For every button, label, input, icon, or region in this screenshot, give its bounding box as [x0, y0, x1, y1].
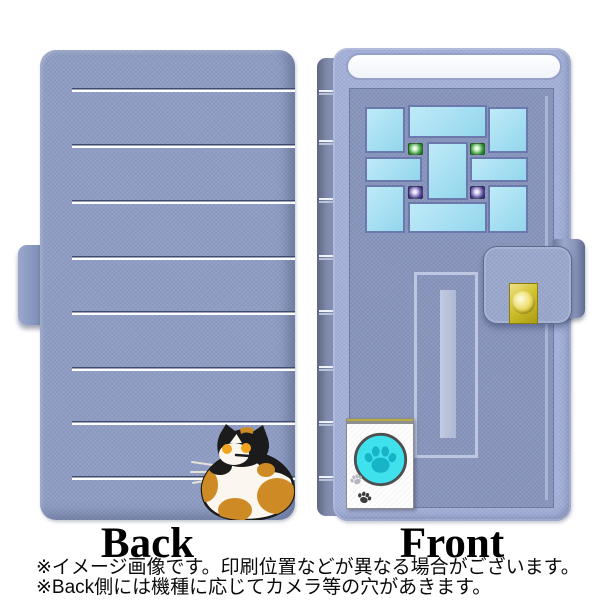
intercom-top-strip — [347, 419, 413, 424]
purple-lamp-icon — [408, 186, 423, 199]
window-pane — [365, 157, 422, 182]
window-pane-center — [427, 142, 468, 200]
gold-knob-icon — [512, 291, 535, 314]
window-pane — [365, 185, 405, 233]
window-pane — [408, 202, 487, 233]
door-handle-bar — [440, 290, 456, 438]
back-stripe — [72, 200, 295, 204]
back-stripe — [72, 256, 295, 260]
phone-case-back — [40, 50, 295, 520]
back-stripe — [72, 367, 295, 371]
window-pane — [408, 105, 487, 138]
window-pane — [470, 157, 528, 182]
window-pane — [365, 107, 405, 153]
door-top-window — [346, 53, 562, 80]
window-pane — [488, 185, 528, 233]
back-stripe — [72, 311, 295, 315]
green-lamp-icon — [408, 143, 423, 155]
back-stripe — [72, 144, 295, 148]
footnotes: ※イメージ画像です。印刷位置などが異なる場合がございます。 ※Back側には機種… — [36, 558, 596, 598]
calico-cat-illustration — [190, 422, 295, 520]
window-pane — [488, 107, 528, 153]
back-stripe — [72, 88, 295, 92]
purple-lamp-icon — [470, 186, 485, 199]
footnote-line-2: ※Back側には機種に応じてカメラ等の穴があきます。 — [36, 578, 596, 598]
product-image: Back Front ※イメージ画像です。印刷位置などが異なる場合がございます。… — [0, 0, 600, 600]
green-lamp-icon — [470, 143, 485, 155]
footnote-line-1: ※イメージ画像です。印刷位置などが異なる場合がございます。 — [36, 558, 596, 578]
